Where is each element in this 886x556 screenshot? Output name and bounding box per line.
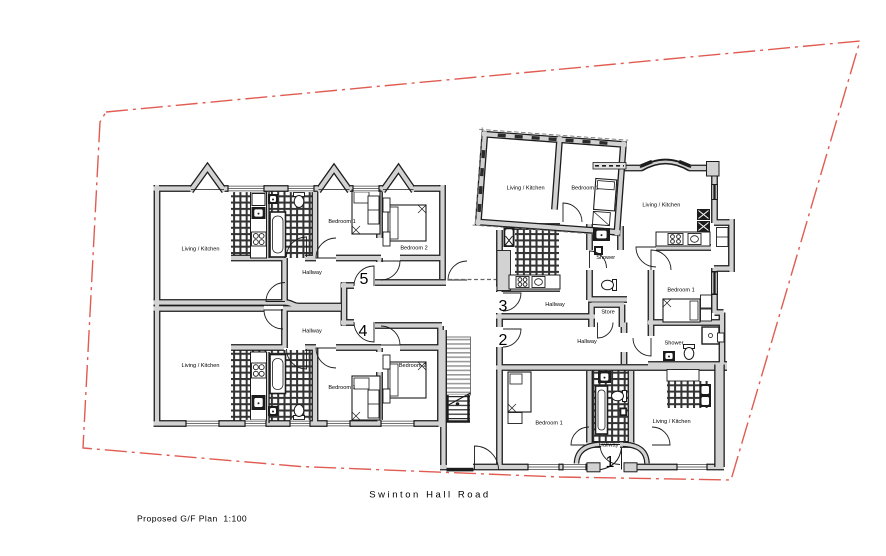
svg-text:Shower: Shower xyxy=(665,341,684,347)
svg-text:Store: Store xyxy=(601,310,614,316)
svg-text:Bedroom 2: Bedroom 2 xyxy=(400,246,427,252)
svg-text:5: 5 xyxy=(360,271,369,288)
svg-text:Swinton Hall Road: Swinton Hall Road xyxy=(369,490,491,501)
svg-text:Bedroom 1: Bedroom 1 xyxy=(571,186,598,192)
svg-text:Bedroom 1: Bedroom 1 xyxy=(667,288,694,294)
svg-text:Bedroom 1: Bedroom 1 xyxy=(535,421,562,427)
svg-text:Living / Kitchen: Living / Kitchen xyxy=(182,363,220,369)
svg-text:Bedroom 1: Bedroom 1 xyxy=(328,385,355,391)
svg-text:Hallway: Hallway xyxy=(599,443,619,449)
svg-text:Living / Kitchen: Living / Kitchen xyxy=(182,247,220,253)
svg-text:Proposed G/F Plan 1:100: Proposed G/F Plan 1:100 xyxy=(137,514,247,524)
svg-text:Hallway: Hallway xyxy=(302,270,322,276)
svg-text:4: 4 xyxy=(359,323,368,340)
svg-text:Shower: Shower xyxy=(596,255,615,261)
svg-text:Hallway: Hallway xyxy=(302,329,322,335)
svg-text:Hallway: Hallway xyxy=(545,302,565,308)
svg-text:2: 2 xyxy=(499,332,508,349)
svg-text:Living / Kitchen: Living / Kitchen xyxy=(642,203,680,209)
svg-text:Living / Kitchen: Living / Kitchen xyxy=(507,186,545,192)
svg-text:Bedroom 1: Bedroom 1 xyxy=(328,219,355,225)
svg-text:3: 3 xyxy=(499,298,508,315)
svg-text:Bedroom 2: Bedroom 2 xyxy=(399,363,426,369)
svg-text:Hallway: Hallway xyxy=(577,339,597,345)
svg-text:Living / Kitchen: Living / Kitchen xyxy=(653,419,691,425)
svg-text:1: 1 xyxy=(606,454,615,471)
